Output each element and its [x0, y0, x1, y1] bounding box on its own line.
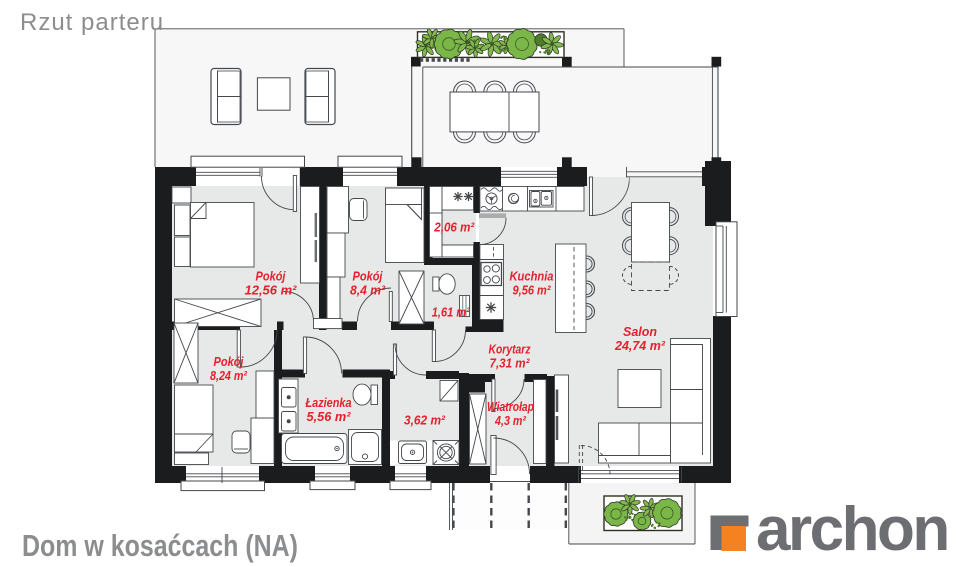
svg-text:12,56 m²: 12,56 m²: [245, 283, 298, 298]
svg-text:Wiatrołap: Wiatrołap: [487, 399, 534, 414]
svg-text:4,3 m²: 4,3 m²: [494, 413, 526, 428]
svg-text:Korytarz: Korytarz: [489, 342, 531, 357]
svg-text:5,56 m²: 5,56 m²: [307, 409, 352, 424]
svg-text:1,61 m²: 1,61 m²: [432, 305, 471, 320]
svg-text:9,56 m²: 9,56 m²: [513, 283, 552, 298]
svg-text:Pokój: Pokój: [353, 269, 383, 284]
svg-text:8,4 m²: 8,4 m²: [350, 283, 386, 298]
svg-text:Łazienka: Łazienka: [305, 395, 352, 410]
svg-text:2,06 m²: 2,06 m²: [433, 220, 474, 235]
svg-text:Pokój: Pokój: [214, 354, 244, 369]
svg-text:8,24 m²: 8,24 m²: [210, 368, 248, 383]
svg-text:Kuchnia: Kuchnia: [510, 269, 554, 284]
svg-text:Salon: Salon: [623, 324, 657, 339]
svg-text:24,74 m²: 24,74 m²: [614, 338, 666, 353]
svg-text:Pokój: Pokój: [256, 269, 286, 284]
svg-text:3,62 m²: 3,62 m²: [404, 413, 446, 428]
svg-text:7,31 m²: 7,31 m²: [490, 356, 531, 371]
svg-text:Dom w kosaćcach (NA): Dom w kosaćcach (NA): [22, 529, 298, 563]
svg-text:archon: archon: [756, 495, 948, 564]
svg-text:Rzut parteru: Rzut parteru: [20, 9, 164, 36]
